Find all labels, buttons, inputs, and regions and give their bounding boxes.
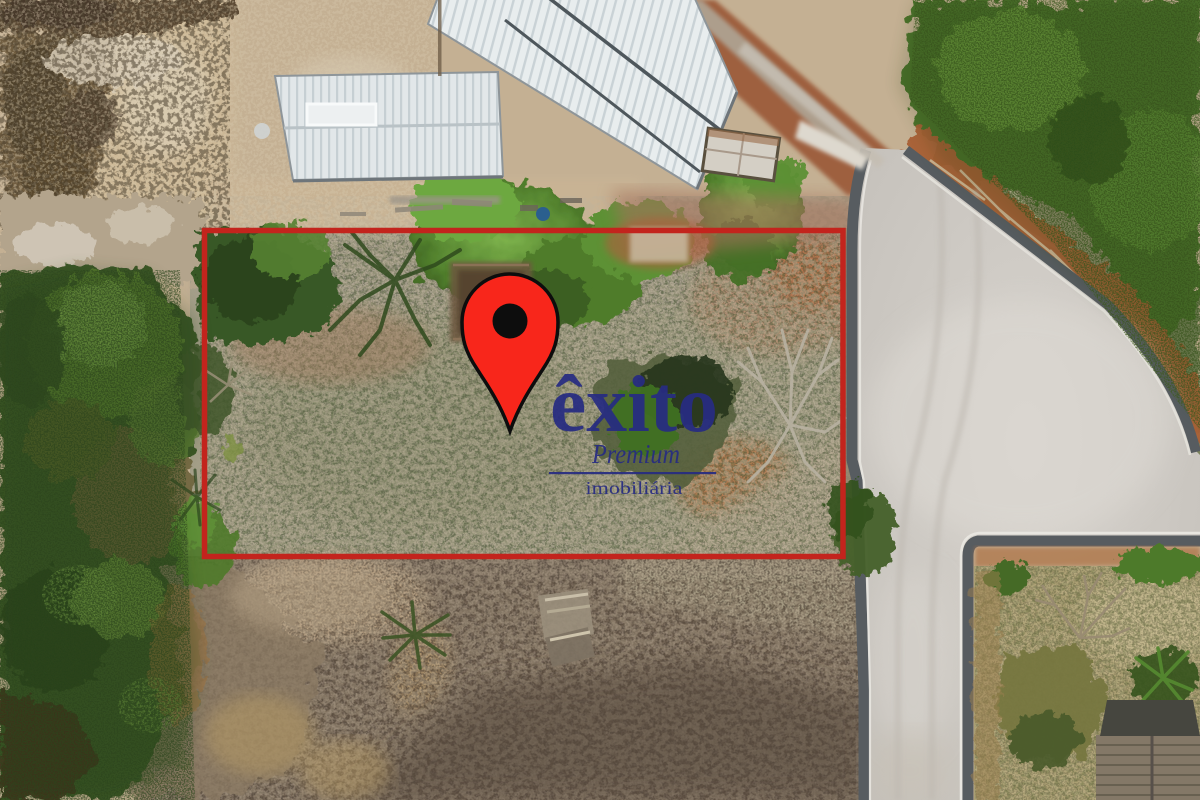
svg-text:imobiliária: imobiliária	[586, 478, 683, 498]
svg-text:êxito: êxito	[550, 361, 718, 449]
svg-text:Premium: Premium	[591, 439, 680, 469]
